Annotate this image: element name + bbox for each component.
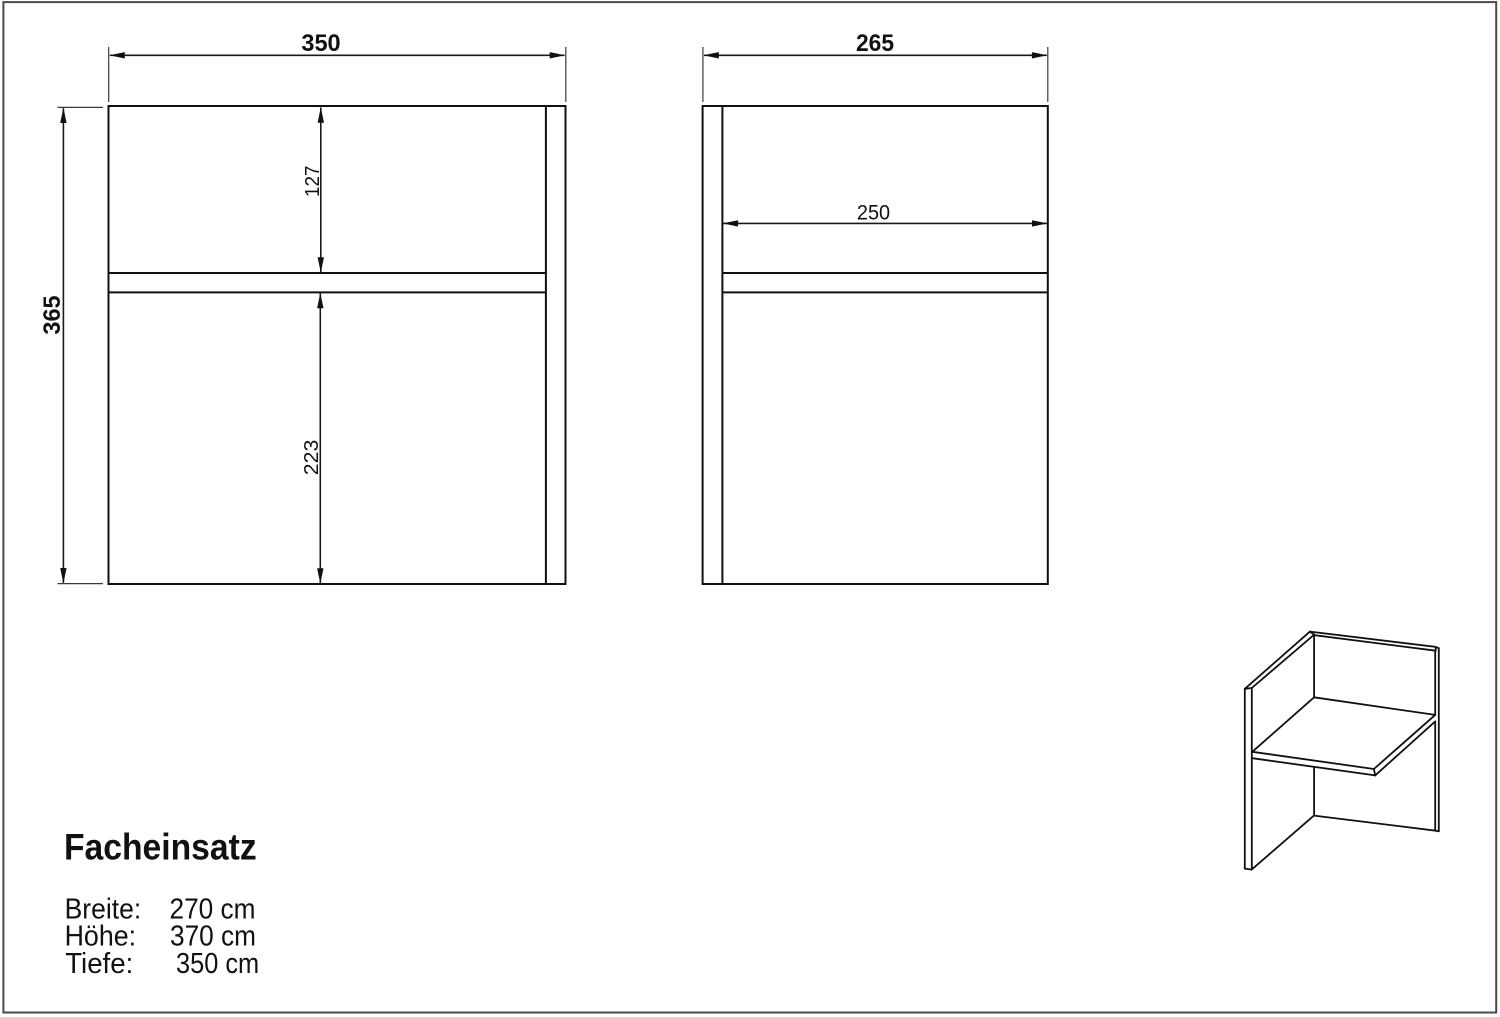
svg-text:350 cm: 350 cm [176,947,259,979]
svg-text:223: 223 [300,440,323,476]
svg-text:250: 250 [857,201,890,225]
svg-text:265: 265 [856,30,894,57]
svg-text:Facheinsatz: Facheinsatz [64,827,257,868]
svg-text:127: 127 [301,166,324,197]
svg-text:365: 365 [39,295,67,334]
svg-text:350: 350 [301,30,340,58]
svg-text:Tiefe:: Tiefe: [65,947,133,978]
